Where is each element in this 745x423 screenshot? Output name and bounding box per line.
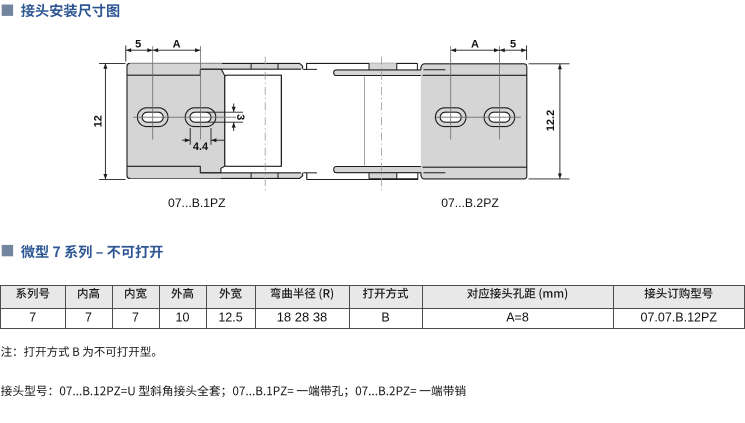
svg-text:12: 12	[93, 115, 105, 127]
svg-text:07.07.B.12PZ: 07.07.B.12PZ	[641, 311, 718, 325]
svg-text:3: 3	[234, 114, 246, 120]
svg-text:7: 7	[85, 311, 92, 325]
svg-text:7: 7	[132, 311, 139, 325]
svg-text:A: A	[471, 38, 479, 50]
svg-text:18 28 38: 18 28 38	[277, 310, 328, 325]
svg-text:10: 10	[176, 311, 190, 325]
svg-text:5: 5	[510, 38, 516, 50]
svg-text:B: B	[381, 311, 389, 325]
svg-text:12.2: 12.2	[545, 110, 557, 131]
svg-text:7: 7	[29, 311, 36, 325]
svg-text:A=8: A=8	[506, 311, 529, 325]
svg-text:07...B.2PZ: 07...B.2PZ	[441, 196, 499, 210]
svg-text:5: 5	[135, 38, 141, 50]
svg-text:12.5: 12.5	[218, 311, 242, 325]
svg-text:4.4: 4.4	[193, 141, 209, 153]
svg-text:A: A	[173, 38, 181, 50]
svg-text:07...B.1PZ: 07...B.1PZ	[168, 196, 226, 210]
